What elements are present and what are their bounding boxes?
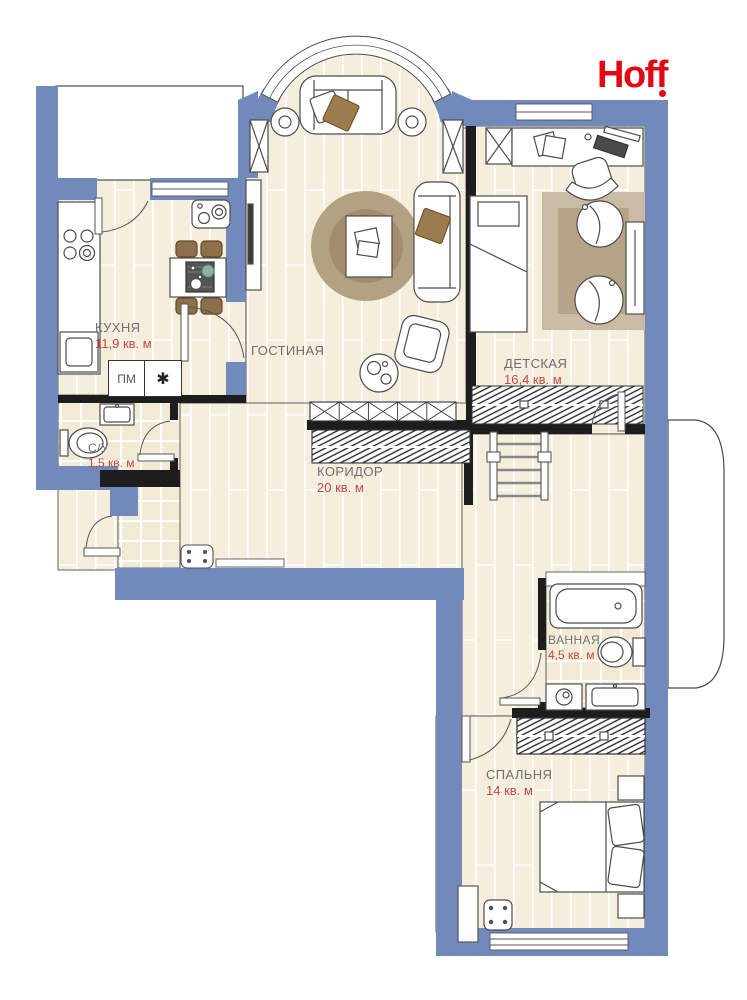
hoff-logo-dot [659, 90, 666, 97]
balcony-right [668, 420, 724, 688]
plant-pot-right-icon [398, 108, 426, 136]
floors [58, 54, 645, 932]
doormat [216, 559, 284, 567]
builtin-appliance-box: ✱ [144, 360, 182, 397]
double-bed [540, 802, 644, 892]
hoff-logo: Hoff [597, 54, 667, 97]
kitchen-sink-lower-icon [60, 332, 98, 372]
balcony-top-left [56, 86, 243, 180]
bedroom-wardrobe [517, 718, 645, 754]
bedroom-left-cabinet [458, 886, 478, 942]
right-sofa [414, 182, 460, 302]
tv-icon [246, 180, 261, 290]
kids-bed [470, 196, 527, 332]
floor-plan-svg [0, 0, 747, 1000]
kids-desk [512, 126, 643, 166]
kids-wardrobe [472, 386, 643, 424]
coffee-table [346, 216, 392, 277]
washing-machine-box: ПМ [108, 360, 145, 397]
bathtub-icon [550, 584, 642, 628]
nightstand-bottom [618, 894, 644, 918]
floor-plan-page: КУХНЯ 11,9 кв. м ГОСТИНАЯ ДЕТСКАЯ 16,4 к… [0, 0, 747, 1000]
plant-pot-left-icon [271, 108, 299, 136]
bath-sink-icon [586, 684, 645, 710]
bath-toilet-icon [598, 637, 645, 667]
kids-column-icon [486, 128, 512, 164]
column-left-icon [250, 120, 268, 172]
column-right-icon [443, 120, 463, 173]
corridor-shelf [310, 402, 456, 421]
bedroom-stool-icon [484, 900, 512, 930]
wc-sink-icon [100, 404, 134, 425]
nightstand-top [618, 776, 644, 800]
kitchen-sink-icon [192, 200, 230, 228]
bay-sofa [300, 76, 396, 134]
side-table-icon [360, 354, 398, 392]
ottoman-icon [181, 545, 213, 568]
corridor-wardrobe [312, 430, 470, 463]
washing-machine-icon [546, 684, 582, 710]
toilet-icon [60, 428, 107, 458]
bedroom-window [490, 933, 628, 950]
